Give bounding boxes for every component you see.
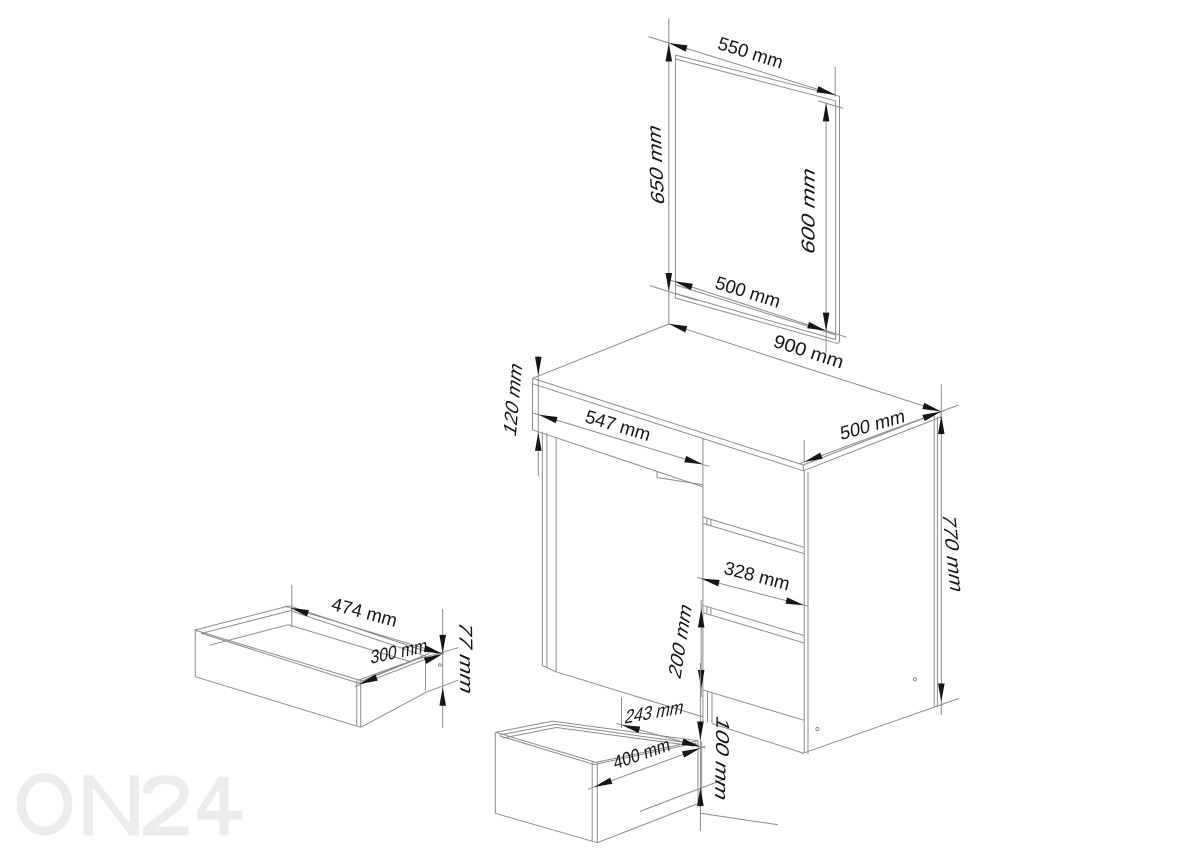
svg-text:550 mm: 550 mm	[715, 32, 785, 72]
svg-text:300 mm: 300 mm	[370, 634, 428, 668]
svg-text:100 mm: 100 mm	[711, 713, 734, 806]
svg-text:200 mm: 200 mm	[666, 599, 696, 683]
svg-text:770 mm: 770 mm	[938, 511, 967, 595]
svg-text:650 mm: 650 mm	[644, 121, 669, 207]
svg-text:328 mm: 328 mm	[722, 557, 792, 594]
svg-text:474 mm: 474 mm	[329, 593, 399, 631]
svg-text:77 mm: 77 mm	[455, 618, 478, 698]
svg-text:600 mm: 600 mm	[798, 163, 819, 257]
svg-text:120 mm: 120 mm	[501, 358, 527, 440]
svg-text:900 mm: 900 mm	[771, 331, 847, 373]
svg-text:243 mm: 243 mm	[623, 695, 686, 728]
